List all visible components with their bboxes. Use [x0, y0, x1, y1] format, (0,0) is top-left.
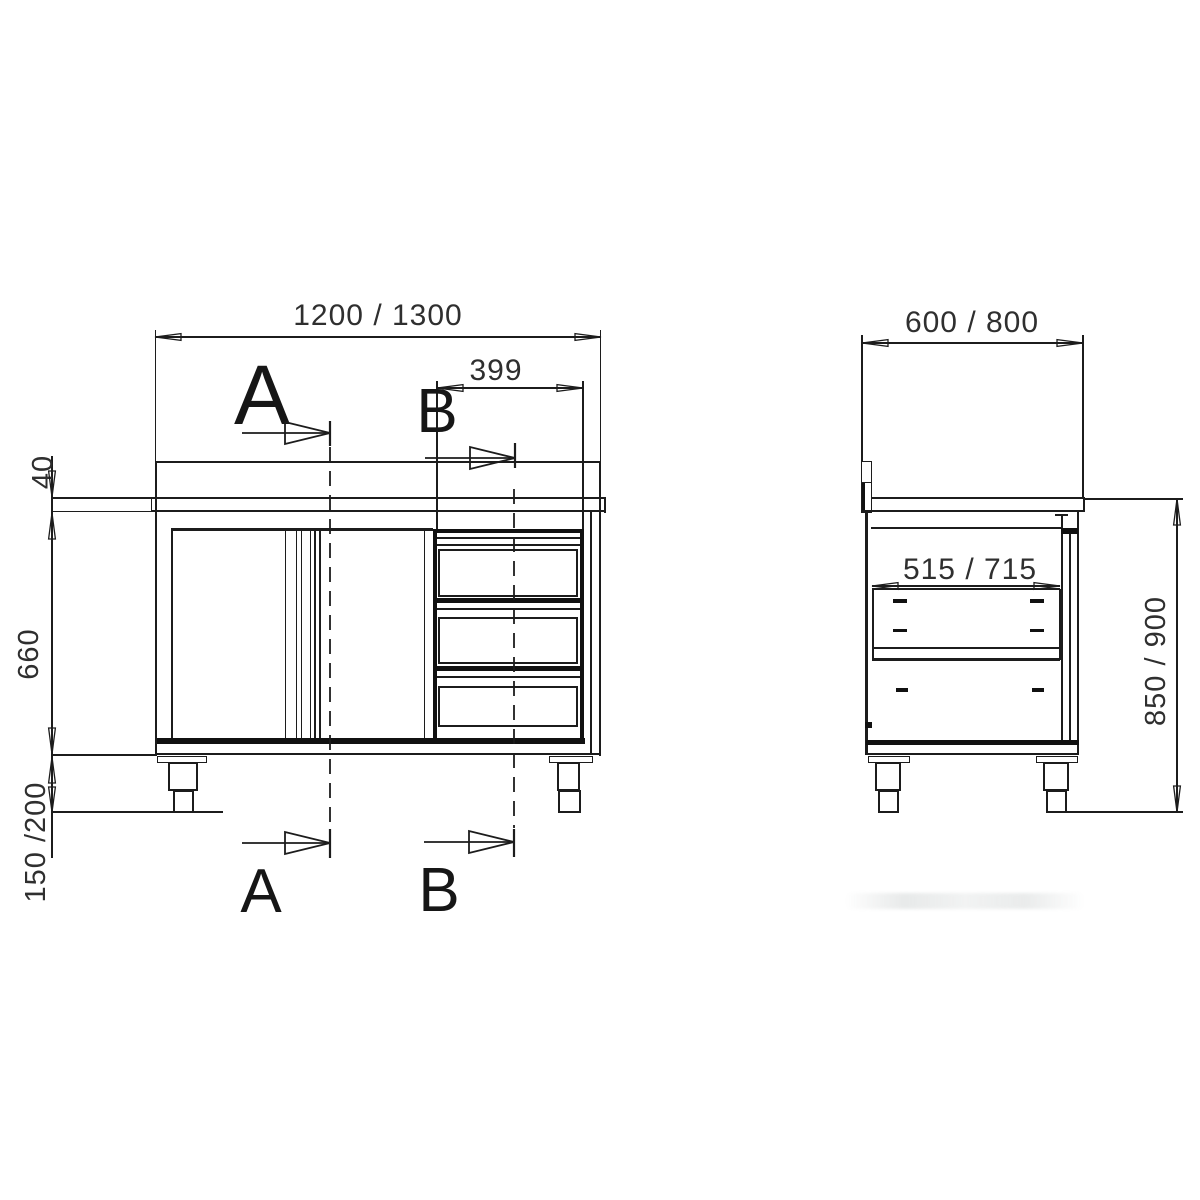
foot-lower: [1046, 790, 1067, 813]
door-profile-line: [1061, 515, 1063, 742]
dim-overall-depth-label: 600 / 800: [862, 305, 1082, 341]
extension-line: [1082, 335, 1084, 497]
foot-upper: [875, 762, 901, 791]
slide-mark: [1032, 688, 1044, 692]
slide-mark: [893, 629, 907, 633]
dim-height-line: [1176, 499, 1178, 812]
cabinet-base-edge: [865, 753, 1079, 755]
worktop-top-edge: [871, 497, 1085, 499]
door-top-block: [1061, 528, 1078, 535]
hinge-notch: [865, 722, 872, 728]
side-view: 600 / 800 515 / 715: [0, 0, 1200, 1200]
extension-line: [1085, 498, 1183, 499]
runner-rail-line: [872, 658, 1060, 660]
scan-artifact: [845, 893, 1085, 909]
slide-mark: [896, 688, 908, 692]
slide-mark: [1030, 629, 1044, 633]
body-back-edge: [865, 512, 867, 755]
runner-box-left: [872, 589, 874, 660]
foot-upper: [1043, 762, 1069, 791]
upstand-profile-fill: [862, 483, 865, 511]
runner-rail-line: [872, 647, 1060, 649]
dim-overall-depth-line: [862, 342, 1083, 344]
technical-drawing-cabinet: 1200 / 1300 399 A B A B: [0, 0, 1200, 1200]
body-top-inner-line: [871, 527, 1061, 529]
dim-inner-depth-line: [872, 585, 1060, 587]
runner-box-top: [872, 588, 1060, 590]
body-front-edge: [1077, 512, 1079, 755]
runner-box-right: [1059, 589, 1061, 660]
slide-mark: [1030, 599, 1044, 603]
cabinet-bottom-rail: [866, 740, 1079, 746]
slide-mark: [893, 599, 907, 603]
worktop-bottom-edge: [861, 510, 1085, 512]
extension-line: [1067, 811, 1183, 812]
dim-inner-depth-label: 515 / 715: [860, 552, 1080, 588]
extension-line: [861, 335, 862, 461]
foot-lower: [878, 790, 899, 813]
dim-height-label: 850 / 900: [1138, 551, 1174, 771]
